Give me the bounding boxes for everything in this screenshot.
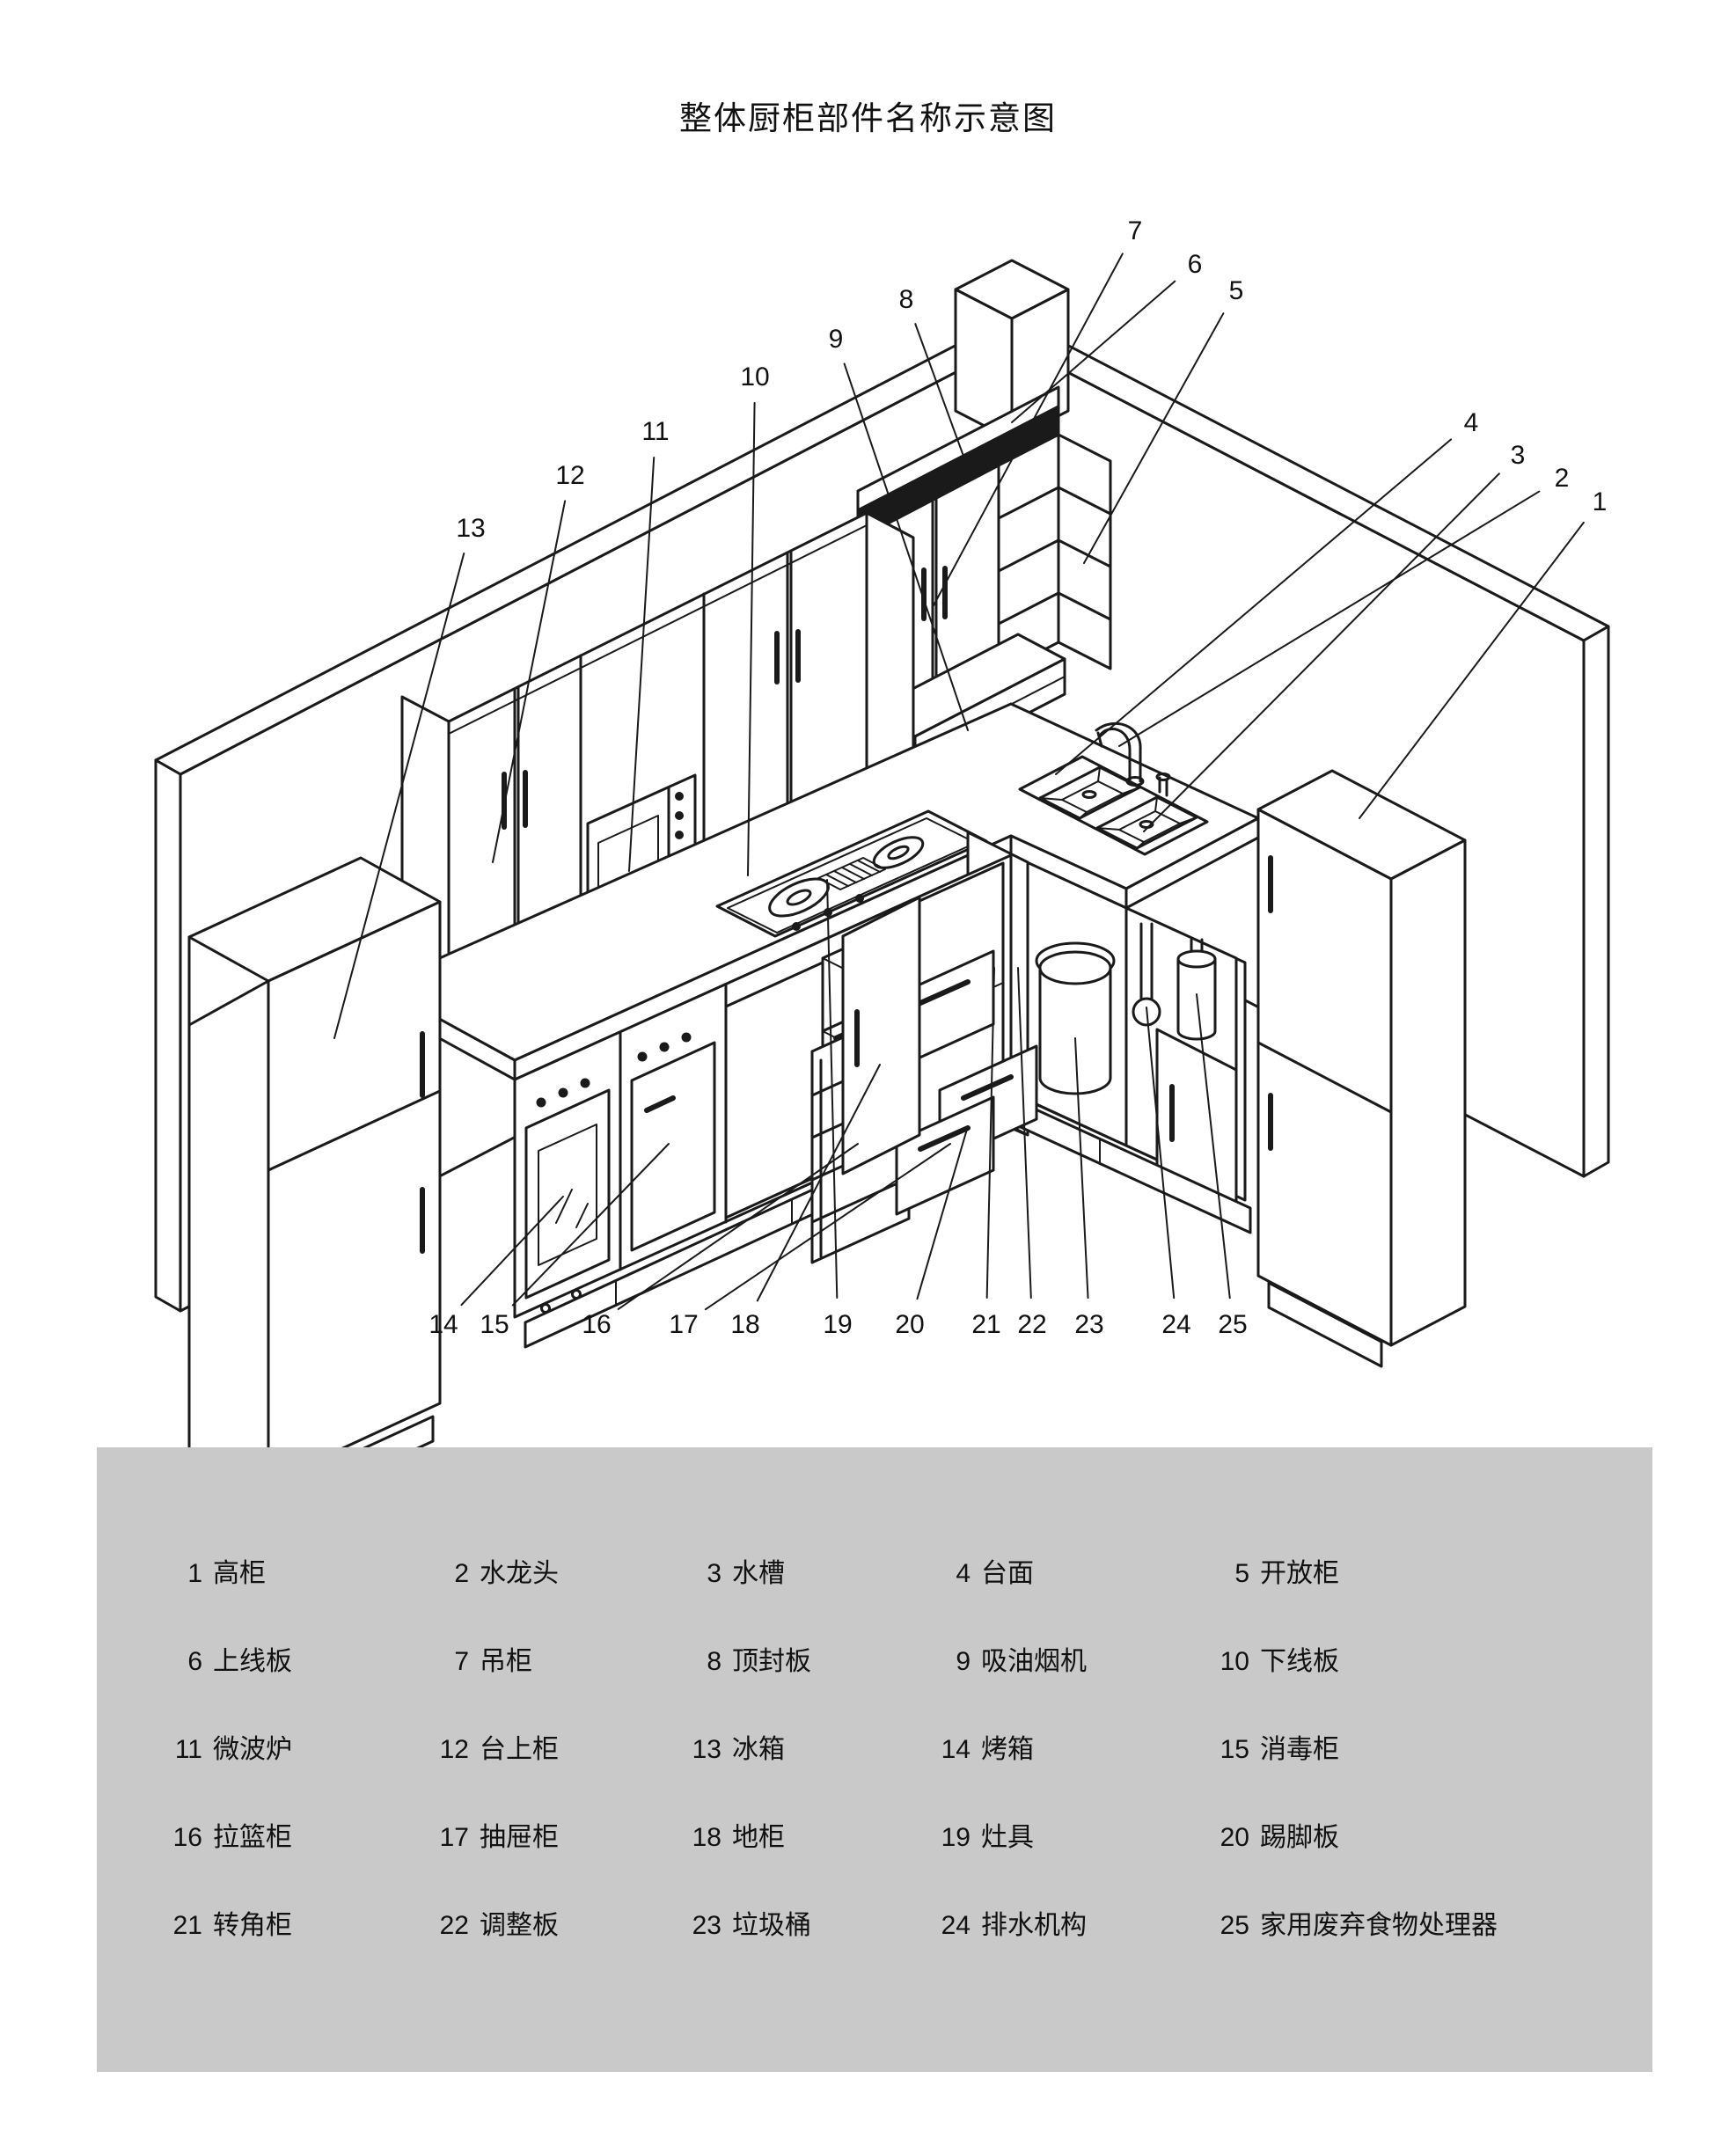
legend-item-20: 20踢脚板 — [1200, 1815, 1652, 1854]
legend-item-name: 台面 — [981, 1551, 1034, 1590]
legend-item-number: 5 — [1200, 1559, 1249, 1589]
tall-cabinet — [1258, 771, 1465, 1366]
legend-item-22: 22调整板 — [420, 1903, 672, 1942]
legend-item-name: 冰箱 — [732, 1727, 785, 1766]
callout-number-20: 20 — [895, 1310, 924, 1339]
legend-item-name: 灶具 — [981, 1815, 1034, 1854]
legend-item-name: 踢脚板 — [1260, 1815, 1339, 1854]
legend-item-name: 上线板 — [213, 1639, 292, 1678]
callout-number-1: 1 — [1593, 487, 1608, 516]
legend-item-number: 20 — [1200, 1823, 1249, 1853]
legend-item-number: 11 — [153, 1735, 202, 1765]
legend-item-name: 微波炉 — [213, 1727, 292, 1766]
callout-number-10: 10 — [740, 362, 769, 392]
legend-item-name: 吸油烟机 — [981, 1639, 1087, 1678]
legend-item-name: 调整板 — [480, 1903, 559, 1942]
legend-item-13: 13冰箱 — [672, 1727, 921, 1766]
callout-number-4: 4 — [1464, 408, 1479, 437]
callout-number-17: 17 — [669, 1310, 698, 1339]
legend-item-9: 9吸油烟机 — [921, 1639, 1200, 1678]
callout-number-19: 19 — [823, 1310, 852, 1339]
legend-item-4: 4台面 — [921, 1551, 1200, 1590]
legend-item-23: 23垃圾桶 — [672, 1903, 921, 1942]
floor-cabinet-door — [843, 897, 919, 1174]
legend-item-24: 24排水机构 — [921, 1903, 1200, 1942]
legend-item-number: 2 — [420, 1559, 469, 1589]
callout-number-18: 18 — [730, 1310, 759, 1339]
legend-item-number: 4 — [921, 1559, 971, 1589]
legend-item-number: 17 — [420, 1823, 469, 1853]
legend-item-name: 台上柜 — [480, 1727, 559, 1766]
legend-item-number: 16 — [153, 1823, 202, 1853]
legend-item-18: 18地柜 — [672, 1815, 921, 1854]
callout-number-5: 5 — [1229, 276, 1244, 305]
legend-item-7: 7吊柜 — [420, 1639, 672, 1678]
legend-item-21: 21转角柜 — [153, 1903, 420, 1942]
legend-item-name: 水槽 — [732, 1551, 785, 1590]
legend-item-10: 10下线板 — [1200, 1639, 1652, 1678]
refrigerator-tall-cabinet — [189, 858, 440, 1527]
callout-number-24: 24 — [1161, 1310, 1190, 1339]
legend-item-name: 水龙头 — [480, 1551, 559, 1590]
legend-item-number: 9 — [921, 1647, 971, 1677]
legend-item-number: 19 — [921, 1823, 971, 1853]
legend-item-6: 6上线板 — [153, 1639, 420, 1678]
page: 整体厨柜部件名称示意图 — [0, 0, 1736, 2138]
legend-item-14: 14烤箱 — [921, 1727, 1200, 1766]
legend-item-number: 6 — [153, 1647, 202, 1677]
legend-item-name: 抽屉柜 — [480, 1815, 559, 1854]
legend-item-name: 消毒柜 — [1260, 1727, 1339, 1766]
legend-item-number: 18 — [672, 1823, 722, 1853]
legend-item-number: 10 — [1200, 1647, 1249, 1677]
legend-item-number: 13 — [672, 1735, 722, 1765]
callout-number-21: 21 — [971, 1310, 1000, 1339]
callout-number-8: 8 — [899, 285, 914, 314]
legend-item-15: 15消毒柜 — [1200, 1727, 1652, 1766]
legend-item-number: 12 — [420, 1735, 469, 1765]
legend-item-name: 拉篮柜 — [213, 1815, 292, 1854]
legend-item-2: 2水龙头 — [420, 1551, 672, 1590]
callout-number-22: 22 — [1017, 1310, 1046, 1339]
legend-item-name: 高柜 — [213, 1551, 266, 1590]
legend-item-number: 21 — [153, 1911, 202, 1941]
legend-item-1: 1高柜 — [153, 1551, 420, 1590]
legend-item-number: 3 — [672, 1559, 722, 1589]
legend-item-name: 地柜 — [732, 1815, 785, 1854]
callout-number-16: 16 — [582, 1310, 611, 1339]
callout-number-13: 13 — [456, 514, 485, 543]
legend-item-17: 17抽屉柜 — [420, 1815, 672, 1854]
legend-item-name: 转角柜 — [213, 1903, 292, 1942]
callout-number-3: 3 — [1511, 441, 1526, 470]
legend-item-16: 16拉篮柜 — [153, 1815, 420, 1854]
legend-item-number: 24 — [921, 1911, 971, 1941]
legend-item-name: 开放柜 — [1260, 1551, 1339, 1590]
legend-item-name: 家用废弃食物处理器 — [1260, 1903, 1498, 1942]
callout-number-11: 11 — [641, 417, 669, 446]
callout-number-15: 15 — [480, 1310, 509, 1339]
legend-item-11: 11微波炉 — [153, 1727, 420, 1766]
callout-number-12: 12 — [555, 461, 584, 490]
legend-item-19: 19灶具 — [921, 1815, 1200, 1854]
legend-item-number: 22 — [420, 1911, 469, 1941]
legend-item-name: 顶封板 — [732, 1639, 811, 1678]
legend-item-name: 吊柜 — [480, 1639, 532, 1678]
callout-number-6: 6 — [1188, 250, 1203, 279]
callout-number-25: 25 — [1218, 1310, 1247, 1339]
legend-item-name: 下线板 — [1260, 1639, 1339, 1678]
legend-item-5: 5开放柜 — [1200, 1551, 1652, 1590]
legend-item-name: 排水机构 — [981, 1903, 1087, 1942]
callout-number-23: 23 — [1074, 1310, 1103, 1339]
legend-item-3: 3水槽 — [672, 1551, 921, 1590]
callout-number-14: 14 — [429, 1310, 458, 1339]
legend-item-name: 烤箱 — [981, 1727, 1034, 1766]
legend-item-number: 23 — [672, 1911, 722, 1941]
legend-item-number: 15 — [1200, 1735, 1249, 1765]
legend-box: 1高柜2水龙头3水槽4台面5开放柜6上线板7吊柜8顶封板9吸油烟机10下线板11… — [97, 1447, 1652, 2072]
legend-item-number: 14 — [921, 1735, 971, 1765]
legend-item-8: 8顶封板 — [672, 1639, 921, 1678]
callout-number-9: 9 — [829, 325, 844, 354]
legend-item-number: 1 — [153, 1559, 202, 1589]
legend-item-25: 25家用废弃食物处理器 — [1200, 1903, 1652, 1942]
basket-cabinet-opening — [726, 963, 823, 1218]
callout-number-2: 2 — [1555, 464, 1570, 493]
callout-number-7: 7 — [1128, 216, 1143, 245]
legend-item-number: 8 — [672, 1647, 722, 1677]
legend-item-name: 垃圾桶 — [732, 1903, 811, 1942]
legend-item-number: 25 — [1200, 1911, 1249, 1941]
legend-item-number: 7 — [420, 1647, 469, 1677]
legend-item-12: 12台上柜 — [420, 1727, 672, 1766]
